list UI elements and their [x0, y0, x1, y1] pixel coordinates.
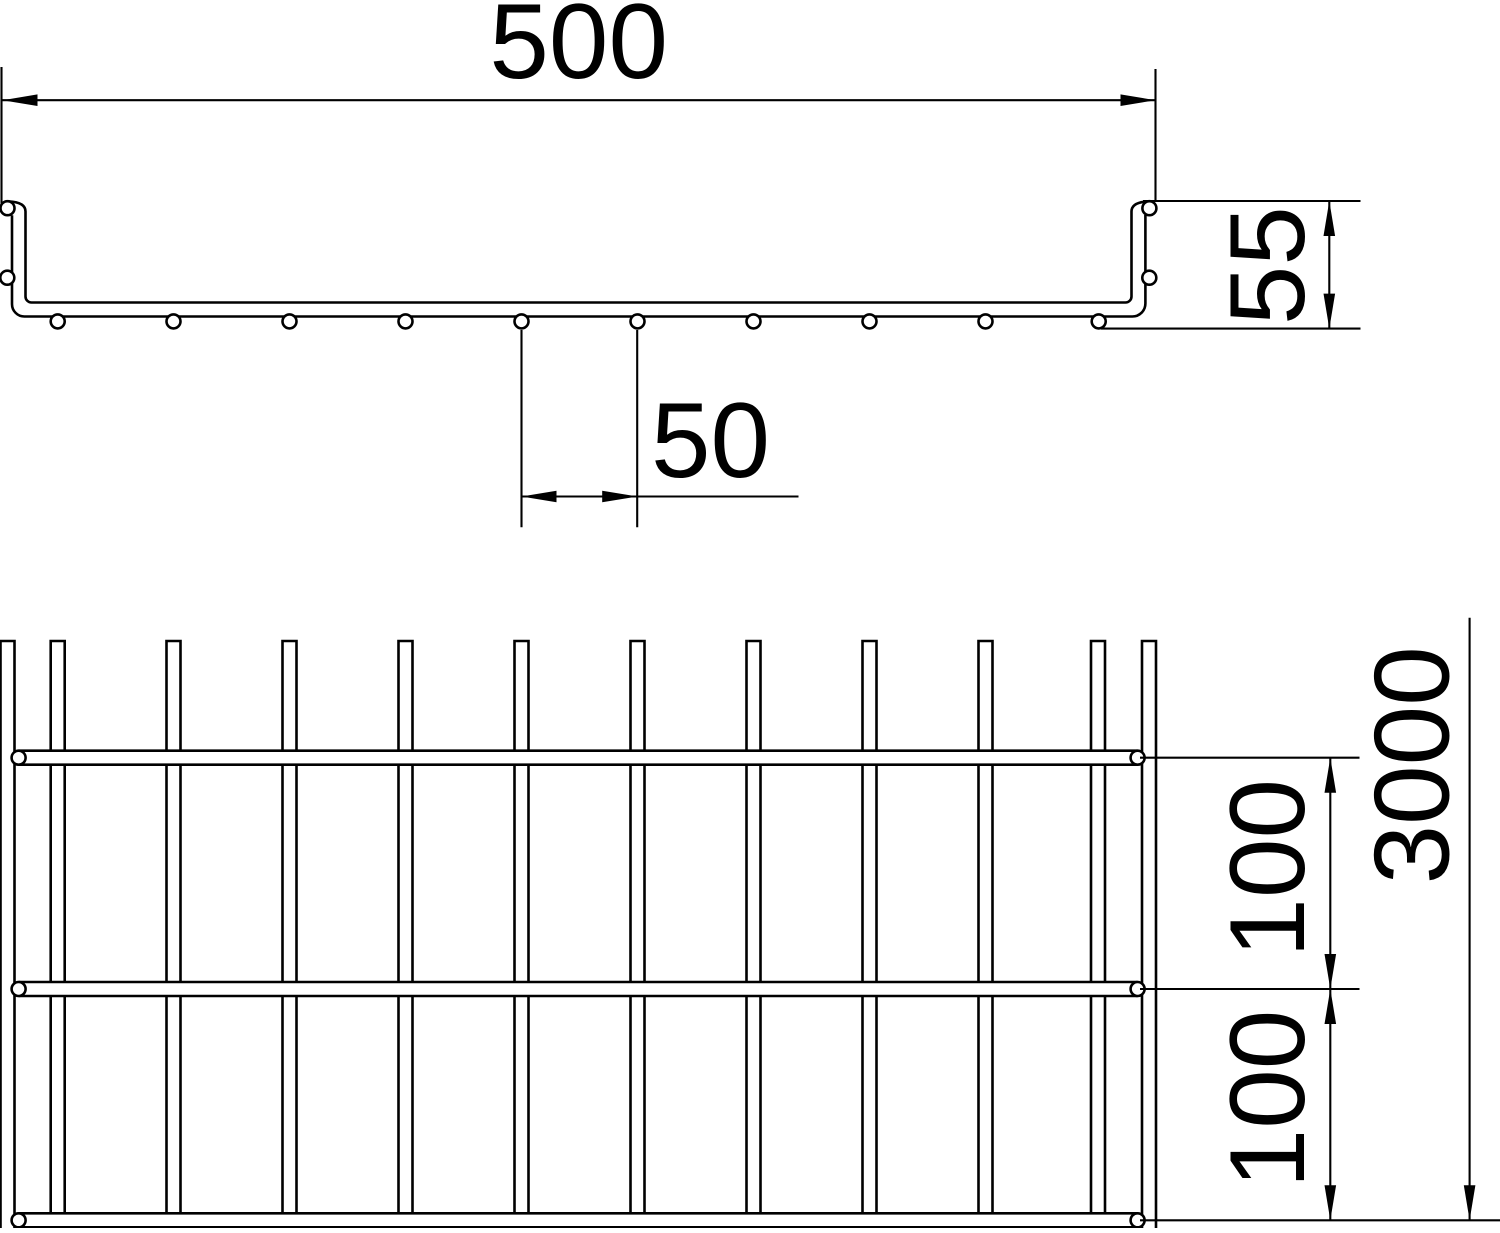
svg-text:100: 100 [1207, 1010, 1327, 1189]
svg-text:55: 55 [1207, 206, 1327, 325]
svg-text:500: 500 [489, 0, 668, 101]
svg-text:100: 100 [1207, 779, 1327, 958]
svg-text:3000: 3000 [1352, 646, 1472, 884]
svg-text:50: 50 [651, 380, 770, 500]
